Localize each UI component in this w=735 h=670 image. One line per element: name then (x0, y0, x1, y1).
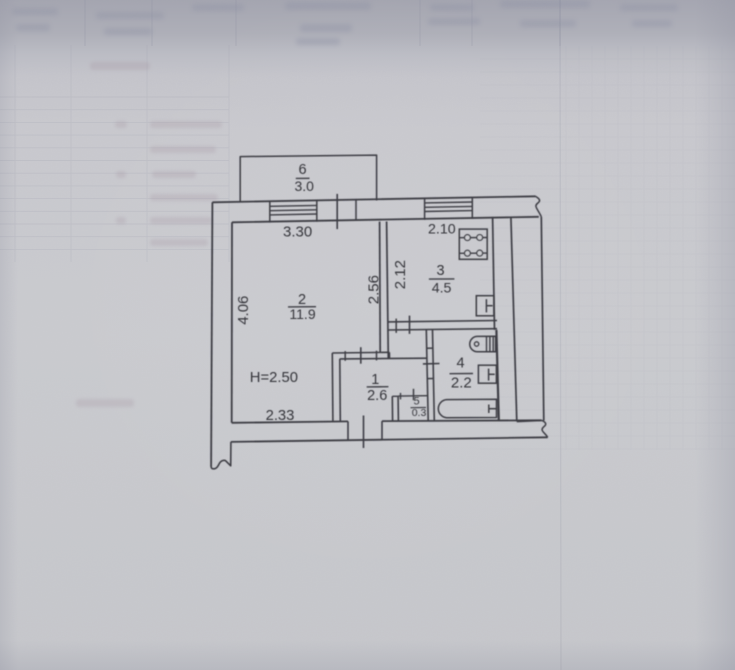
svg-text:2.6: 2.6 (367, 388, 387, 404)
svg-text:2.12: 2.12 (392, 260, 409, 289)
svg-text:6: 6 (298, 162, 306, 178)
svg-text:4.5: 4.5 (432, 281, 452, 297)
svg-text:3.30: 3.30 (283, 224, 312, 241)
svg-text:4.06: 4.06 (235, 296, 252, 325)
svg-text:0.3: 0.3 (412, 407, 427, 419)
svg-text:2.56: 2.56 (366, 275, 383, 304)
svg-text:4: 4 (457, 356, 465, 372)
svg-text:2.2: 2.2 (451, 375, 472, 392)
svg-text:2.10: 2.10 (428, 221, 456, 237)
svg-text:1: 1 (371, 372, 379, 388)
svg-text:2.33: 2.33 (266, 408, 295, 424)
svg-text:3: 3 (436, 263, 444, 279)
svg-text:11.9: 11.9 (289, 306, 315, 322)
svg-text:3.0: 3.0 (294, 178, 314, 194)
svg-text:5: 5 (414, 396, 420, 408)
svg-text:H=2.50: H=2.50 (250, 370, 298, 386)
